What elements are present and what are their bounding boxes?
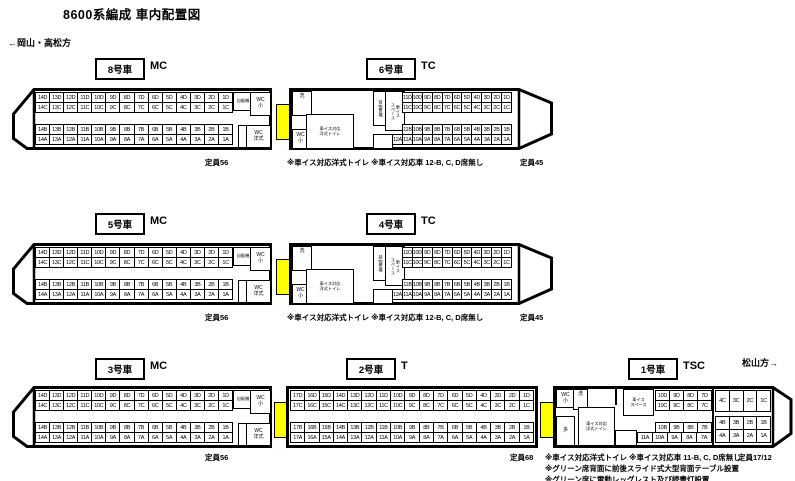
car-8: 14D13D12D11D10D9D8D7D6D5D4D3D2D1D 14C13C… — [8, 88, 272, 150]
seat-14C: 14C — [35, 400, 50, 411]
car3-number-label: 3号車 — [95, 358, 145, 380]
seat-10A: 10A — [91, 432, 106, 443]
seat-1C: 1C — [501, 257, 512, 268]
seat-17A: 17A — [290, 432, 305, 443]
car1-green-seat-row-A: 4A3A2A1A — [715, 429, 771, 443]
seat-11A: 11A — [77, 134, 92, 145]
car8-number-label: 8号車 — [95, 58, 145, 80]
car4-seat-row-C: 11C10C9C8C7C6C5C4C3C2C1C — [402, 257, 512, 268]
seat-9A: 9A — [105, 432, 120, 443]
seat-1C: 1C — [218, 257, 233, 268]
washstand-box: 洗 — [292, 246, 312, 271]
wheelchair-space-box: 車イス スペース — [623, 389, 654, 416]
seat-14C: 14C — [333, 400, 348, 411]
seat-1C: 1C — [218, 400, 233, 411]
wheelchair-toilet-box: 車イス対応 洋式トイレ — [306, 269, 354, 304]
seat-4A: 4A — [715, 429, 730, 443]
seat-12C: 12C — [361, 400, 376, 411]
partition-box — [373, 134, 393, 149]
seat-13A: 13A — [49, 134, 64, 145]
seat-2C: 2C — [204, 257, 219, 268]
multipurpose-toilet-box: 多 — [556, 416, 575, 446]
seat-15A: 15A — [319, 432, 334, 443]
car3-seat-row-C: 14C13C12C11C10C9C8C7C6C5C4C3C2C1C — [35, 400, 233, 411]
seat-12C: 12C — [63, 400, 78, 411]
car8-seat-row-A: 14A13A12A11A10A9A8A7A6A5A4A3A2A1A — [35, 134, 233, 145]
car1-note-1: ※車イス対応洋式トイレ ※車イス対応車 11-B, C, D席無し — [545, 452, 741, 463]
seat-8A: 8A — [119, 432, 134, 443]
seat-9A: 9A — [105, 289, 120, 300]
seat-4C: 4C — [476, 400, 491, 411]
seat-13C: 13C — [347, 400, 362, 411]
seat-16C: 16C — [304, 400, 319, 411]
car2-type-label: T — [401, 360, 408, 372]
seat-14A: 14A — [333, 432, 348, 443]
seat-3A: 3A — [190, 134, 205, 145]
seat-8A: 8A — [419, 432, 434, 443]
car4-seat-row-A: 12A11A10A9A8A7A6A5A4A3A2A1A — [392, 289, 512, 300]
seat-10A: 10A — [91, 134, 106, 145]
seat-3C: 3C — [729, 390, 744, 412]
seat-2A: 2A — [204, 134, 219, 145]
seat-1C: 1C — [218, 102, 233, 113]
seat-1C: 1C — [756, 390, 771, 412]
seat-2A: 2A — [204, 432, 219, 443]
seat-12A: 12A — [63, 134, 78, 145]
seat-14A: 14A — [35, 432, 50, 443]
seat-8C: 8C — [119, 257, 134, 268]
seat-6A: 6A — [148, 134, 163, 145]
seat-7A: 7A — [134, 289, 149, 300]
car1-note-2: ※グリーン席背面に前後スライド式大型背面テーブル設置 — [545, 463, 739, 474]
seat-3A: 3A — [190, 432, 205, 443]
seat-6C: 6C — [148, 102, 163, 113]
wc-western-box: WC 洋式 — [246, 125, 271, 148]
seat-8A: 8A — [119, 289, 134, 300]
seat-1A: 1A — [218, 289, 233, 300]
seat-7A: 7A — [134, 432, 149, 443]
car-1: WC 小 洗 多 車イス対応 洋式トイレ 車イス スペース 10D9D8D7D … — [553, 386, 793, 448]
seat-11C: 11C — [376, 400, 391, 411]
seat-15C: 15C — [319, 400, 334, 411]
seat-3C: 3C — [190, 102, 205, 113]
seat-2C: 2C — [743, 390, 758, 412]
wc-small-box: WC 小 — [250, 247, 271, 271]
seat-4A: 4A — [176, 289, 191, 300]
seat-3B: 3B — [729, 416, 744, 430]
wc-western-box: WC 洋式 — [246, 423, 271, 446]
seat-4A: 4A — [176, 432, 191, 443]
seat-9A: 9A — [404, 432, 419, 443]
seat-12A: 12A — [63, 289, 78, 300]
car-4: 洗 WC 小 車イス対応 洋式トイレ 荷物置場 車イス スペース 11D10D9… — [289, 243, 555, 305]
seat-9C: 9C — [404, 400, 419, 411]
seat-6A: 6A — [447, 432, 462, 443]
seat-10A: 10A — [390, 432, 405, 443]
seat-13C: 13C — [49, 257, 64, 268]
car8-seat-row-C: 14C13C12C11C10C9C8C7C6C5C4C3C2C1C — [35, 102, 233, 113]
seat-10C: 10C — [91, 400, 106, 411]
seat-7C: 7C — [134, 400, 149, 411]
seat-3A: 3A — [490, 432, 505, 443]
seat-7A: 7A — [696, 432, 712, 443]
seat-5C: 5C — [162, 102, 177, 113]
car4-number-label: 4号車 — [366, 213, 416, 235]
seat-5A: 5A — [162, 432, 177, 443]
seat-1C: 1C — [501, 102, 512, 113]
car5-type-label: MC — [150, 215, 167, 227]
seat-5C: 5C — [162, 400, 177, 411]
car3-type-label: MC — [150, 360, 167, 372]
car3-capacity: 定員56 — [205, 452, 228, 463]
car1-green-seat-row-B: 4B3B2B1B — [715, 416, 771, 430]
seat-3A: 3A — [729, 429, 744, 443]
seat-6C: 6C — [447, 400, 462, 411]
seat-9C: 9C — [105, 400, 120, 411]
seat-6A: 6A — [148, 289, 163, 300]
seat-5A: 5A — [162, 134, 177, 145]
seat-14C: 14C — [35, 102, 50, 113]
seat-4B: 4B — [715, 416, 730, 430]
seat-14A: 14A — [35, 134, 50, 145]
train-layout-diagram: 8600系編成 車内配置図 ←岡山・高松方 松山方→ 8号車 MC 6号車 TC… — [0, 0, 795, 481]
car1-number-label: 1号車 — [628, 358, 678, 380]
seat-1B: 1B — [756, 416, 771, 430]
car1-capacity: 定員17/12 — [738, 452, 772, 463]
car1-seat-row-C: 10C9C8C7C — [655, 400, 712, 411]
seat-8C: 8C — [419, 400, 434, 411]
seat-17C: 17C — [290, 400, 305, 411]
car6-capacity: 定員45 — [520, 157, 543, 168]
seat-16A: 16A — [304, 432, 319, 443]
page-title: 8600系編成 車内配置図 — [63, 4, 201, 23]
gangway-connection — [276, 104, 290, 140]
car8-type-label: MC — [150, 60, 167, 72]
car-3: 14D13D12D11D10D9D8D7D6D5D4D3D2D1D 14C13C… — [8, 386, 272, 448]
seat-8A: 8A — [681, 432, 697, 443]
seat-9C: 9C — [669, 400, 684, 411]
partition-box — [615, 430, 637, 446]
seat-11C: 11C — [77, 257, 92, 268]
car5-seat-row-C: 14C13C12C11C10C9C8C7C6C5C4C3C2C1C — [35, 257, 233, 268]
wheelchair-toilet-box: 車イス対応 洋式トイレ — [306, 114, 354, 149]
washstand-box: 洗 — [292, 91, 312, 116]
seat-14C: 14C — [35, 257, 50, 268]
seat-8C: 8C — [683, 400, 698, 411]
car2-seat-row-A: 17A16A15A14A13A12A11A10A9A8A7A6A5A4A3A2A… — [290, 432, 534, 443]
seat-11A: 11A — [637, 432, 653, 443]
seat-3A: 3A — [190, 289, 205, 300]
seat-5C: 5C — [162, 257, 177, 268]
seat-3C: 3C — [190, 257, 205, 268]
seat-10C: 10C — [91, 257, 106, 268]
gangway-connection — [276, 259, 290, 295]
seat-9A: 9A — [667, 432, 683, 443]
seat-9C: 9C — [105, 102, 120, 113]
seat-2C: 2C — [504, 400, 519, 411]
seat-10A: 10A — [652, 432, 668, 443]
seat-10C: 10C — [390, 400, 405, 411]
seat-3C: 3C — [190, 400, 205, 411]
seat-11A: 11A — [77, 289, 92, 300]
seat-12C: 12C — [63, 102, 78, 113]
seat-8C: 8C — [119, 400, 134, 411]
seat-13A: 13A — [49, 432, 64, 443]
seat-12A: 12A — [361, 432, 376, 443]
seat-11C: 11C — [77, 400, 92, 411]
car2-number-label: 2号車 — [346, 358, 396, 380]
seat-7C: 7C — [697, 400, 712, 411]
seat-6A: 6A — [148, 432, 163, 443]
seat-13C: 13C — [49, 102, 64, 113]
car-2: 17D16D15D14D13D12D11D10D9D8D7D6D5D4D3D2D… — [286, 386, 538, 448]
car8-capacity: 定員56 — [205, 157, 228, 168]
car1-green-seat-row-C: 4C3C2C1C — [715, 390, 771, 412]
car-5: 14D13D12D11D10D9D8D7D6D5D4D3D2D1D 14C13C… — [8, 243, 272, 305]
seat-13A: 13A — [49, 289, 64, 300]
seat-11A: 11A — [77, 432, 92, 443]
seat-2C: 2C — [204, 400, 219, 411]
seat-10C: 10C — [91, 102, 106, 113]
car4-type-label: TC — [421, 215, 436, 227]
seat-2A: 2A — [743, 429, 758, 443]
seat-12A: 12A — [63, 432, 78, 443]
seat-10C: 10C — [655, 400, 670, 411]
seat-2B: 2B — [743, 416, 758, 430]
seat-7C: 7C — [134, 257, 149, 268]
seat-4A: 4A — [476, 432, 491, 443]
car3-seat-row-A: 14A13A12A11A10A9A8A7A6A5A4A3A2A1A — [35, 432, 233, 443]
seat-4C: 4C — [176, 257, 191, 268]
car1-seat-row-A: 11A10A9A8A7A — [637, 432, 712, 443]
wc-small-box: WC 小 — [250, 92, 271, 116]
seat-1A: 1A — [218, 134, 233, 145]
seat-12C: 12C — [63, 257, 78, 268]
seat-4C: 4C — [176, 400, 191, 411]
seat-1A: 1A — [519, 432, 534, 443]
direction-label-right: 松山方→ — [742, 356, 778, 369]
seat-8C: 8C — [119, 102, 134, 113]
car5-number-label: 5号車 — [95, 213, 145, 235]
seat-1A: 1A — [501, 134, 512, 145]
car6-note: ※車イス対応洋式トイレ ※車イス対応車 12-B, C, D席無し — [287, 157, 483, 168]
seat-1A: 1A — [501, 289, 512, 300]
seat-5C: 5C — [462, 400, 477, 411]
seat-2C: 2C — [204, 102, 219, 113]
car6-type-label: TC — [421, 60, 436, 72]
seat-7C: 7C — [433, 400, 448, 411]
car2-capacity: 定員68 — [510, 452, 533, 463]
seat-5A: 5A — [462, 432, 477, 443]
car4-capacity: 定員45 — [520, 312, 543, 323]
car6-seat-row-C: 11C10C9C8C7C6C5C4C3C2C1C — [402, 102, 512, 113]
seat-2A: 2A — [504, 432, 519, 443]
seat-4C: 4C — [715, 390, 730, 412]
seat-13A: 13A — [347, 432, 362, 443]
car-6: 洗 WC 小 車イス対応 洋式トイレ 荷物置場 車イス スペース 11D10D9… — [289, 88, 555, 150]
partition-line — [615, 389, 617, 405]
seat-9A: 9A — [105, 134, 120, 145]
seat-11C: 11C — [77, 102, 92, 113]
wc-small-box: WC 小 — [250, 390, 271, 414]
seat-1A: 1A — [218, 432, 233, 443]
wheelchair-toilet-box: 車イス対応 洋式トイレ — [578, 407, 615, 446]
seat-1A: 1A — [756, 429, 771, 443]
car2-seat-row-C: 17C16C15C14C13C12C11C10C9C8C7C6C5C4C3C2C… — [290, 400, 534, 411]
car4-note: ※車イス対応洋式トイレ ※車イス対応車 12-B, C, D席無し — [287, 312, 483, 323]
seat-7A: 7A — [134, 134, 149, 145]
seat-11A: 11A — [376, 432, 391, 443]
seat-7A: 7A — [433, 432, 448, 443]
seat-4A: 4A — [176, 134, 191, 145]
seat-6C: 6C — [148, 257, 163, 268]
gangway-connection — [540, 402, 554, 438]
green-section-divider — [712, 388, 714, 446]
partition-box — [373, 289, 393, 304]
car6-number-label: 6号車 — [366, 58, 416, 80]
wc-western-box: WC 洋式 — [246, 280, 271, 303]
direction-label-left: ←岡山・高松方 — [8, 36, 71, 49]
seat-4C: 4C — [176, 102, 191, 113]
seat-13C: 13C — [49, 400, 64, 411]
car1-type-label: TSC — [683, 360, 705, 372]
car5-capacity: 定員56 — [205, 312, 228, 323]
seat-1C: 1C — [519, 400, 534, 411]
seat-2A: 2A — [204, 289, 219, 300]
seat-9C: 9C — [105, 257, 120, 268]
car1-note-3: ※グリーン席に電動レッグレスト及び読書灯設置 — [545, 474, 709, 481]
seat-14A: 14A — [35, 289, 50, 300]
seat-10A: 10A — [91, 289, 106, 300]
car5-seat-row-A: 14A13A12A11A10A9A8A7A6A5A4A3A2A1A — [35, 289, 233, 300]
seat-3C: 3C — [490, 400, 505, 411]
seat-8A: 8A — [119, 134, 134, 145]
seat-5A: 5A — [162, 289, 177, 300]
seat-6C: 6C — [148, 400, 163, 411]
car6-seat-row-A: 12A11A10A9A8A7A6A5A4A3A2A1A — [392, 134, 512, 145]
seat-7C: 7C — [134, 102, 149, 113]
